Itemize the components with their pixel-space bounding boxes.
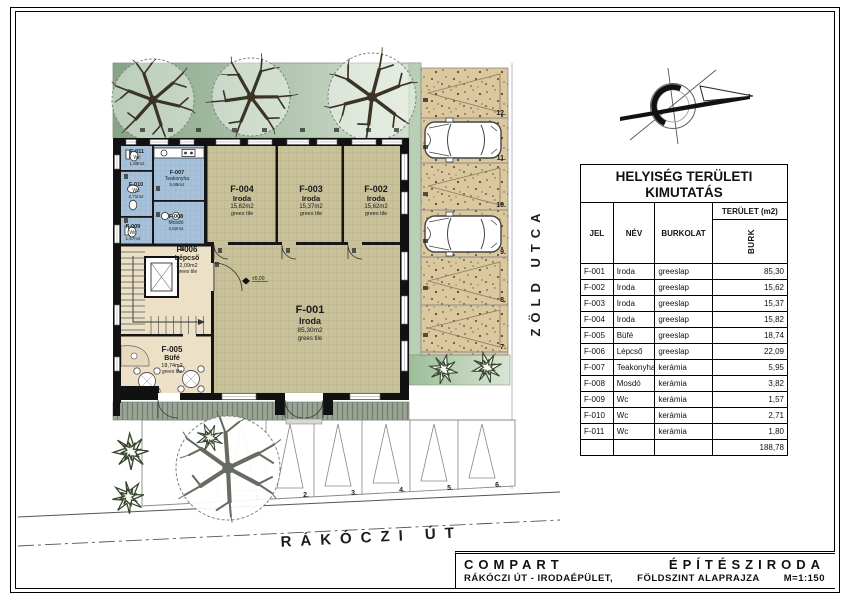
company-name-left: COMPART: [464, 557, 564, 572]
room-label-f008: F-008 Mosdó 3,82m2: [168, 214, 184, 231]
stall-number: 6.: [495, 482, 501, 489]
svg-text:grees tile: grees tile: [177, 269, 198, 275]
area-table-title-line2: KIMUTATÁS: [581, 185, 787, 201]
svg-text:Iroda: Iroda: [233, 194, 252, 203]
stall-number: 3.: [351, 490, 357, 497]
stall-number: 2.: [303, 492, 309, 499]
svg-text:Iroda: Iroda: [302, 194, 321, 203]
svg-text:F-003: F-003: [299, 184, 323, 194]
building: ±0,00: [113, 128, 409, 424]
stall-number: 4.: [399, 487, 405, 494]
stall-number: 11.: [497, 155, 506, 162]
svg-text:15,82m2: 15,82m2: [230, 204, 254, 210]
elevator: [145, 257, 178, 297]
title-block: COMPART ÉPÍTÉSZIRODA RÁKÓCZI ÚT - IRODAÉ…: [455, 551, 835, 588]
svg-text:Iroda: Iroda: [299, 316, 322, 326]
col-header-nev: NÉV: [614, 203, 656, 263]
table-row: F-002Irodagreeslap15,62: [581, 280, 787, 296]
col-header-jel: JEL: [581, 203, 614, 263]
svg-text:±0,00: ±0,00: [252, 276, 265, 282]
svg-text:F-001: F-001: [296, 304, 325, 316]
svg-text:85,30m2: 85,30m2: [297, 327, 323, 334]
svg-text:15,62m2: 15,62m2: [364, 204, 388, 210]
area-table-title-line1: HELYISÉG TERÜLETI: [581, 169, 787, 185]
svg-text:grees tile: grees tile: [298, 336, 323, 342]
table-row: F-005Büfégreeslap18,74: [581, 328, 787, 344]
table-row: F-007Teakonyhakerámia5,95: [581, 360, 787, 376]
svg-text:2,71m2: 2,71m2: [128, 194, 144, 199]
svg-text:grees tile: grees tile: [300, 211, 322, 217]
svg-text:1,80m2: 1,80m2: [129, 161, 145, 166]
svg-text:Iroda: Iroda: [367, 194, 386, 203]
room-label-f002: F-002 Iroda 15,62m2 grees tile: [364, 184, 388, 217]
room-label-f001: F-001 Iroda 85,30m2 grees tile: [296, 304, 325, 342]
car-icon: [425, 118, 501, 162]
stall-number: 12.: [496, 110, 506, 117]
svg-text:Büfé: Büfé: [164, 355, 180, 362]
drawing-name: FÖLDSZINT ALAPRAJZA: [637, 573, 760, 584]
street-label-zold-utca: ZÖLD UTCA: [528, 207, 543, 336]
project-name: RÁKÓCZI ÚT - IRODAÉPÜLET,: [464, 573, 613, 584]
col-header-terulet: TERÜLET (m2) BURK: [713, 203, 787, 263]
table-total-row: 188,78: [581, 440, 787, 455]
room-label-f006: F-006 Lépcső 22,09m2 grees tile: [175, 245, 200, 275]
table-row: F-006Lépcsőgreeslap22,09: [581, 344, 787, 360]
company-name-right: ÉPÍTÉSZIRODA: [669, 557, 825, 572]
area-table-title: HELYISÉG TERÜLETI KIMUTATÁS: [581, 165, 787, 203]
col-header-terulet-m2: TERÜLET (m2): [713, 203, 787, 220]
svg-text:Lépcső: Lépcső: [175, 255, 200, 262]
svg-text:grees tile: grees tile: [365, 211, 387, 217]
table-row: F-009Wckerámia1,57: [581, 392, 787, 408]
room-label-f003: F-003 Iroda 15,37m2 grees tile: [299, 184, 323, 217]
stall-number: 9.: [500, 249, 506, 256]
col-header-burkolat: BURKOLAT: [655, 203, 712, 263]
col-header-burk-rotated: BURK: [747, 229, 756, 254]
svg-text:3,82m2: 3,82m2: [168, 226, 184, 231]
table-row: F-003Irodagreeslap15,37: [581, 296, 787, 312]
table-row: F-001Irodagreeslap85,30: [581, 264, 787, 280]
svg-text:F-004: F-004: [230, 184, 254, 194]
table-row: F-008Mosdókerámia3,82: [581, 376, 787, 392]
table-total-value: 188,78: [713, 440, 787, 455]
parking-lot-right: 12. 11. 10. 9. 8. 7.: [421, 68, 508, 355]
stall-number: 10.: [496, 202, 506, 209]
svg-text:grees tile: grees tile: [231, 211, 253, 217]
svg-text:F-002: F-002: [364, 184, 388, 194]
svg-text:1,57m2: 1,57m2: [125, 236, 141, 241]
table-row: F-011Wckerámia1,80: [581, 424, 787, 440]
svg-text:F-005: F-005: [162, 345, 183, 354]
room-label-f005: F-005 Büfé 18,74m2 grees tile: [161, 345, 183, 375]
sidewalk-strip: [113, 402, 409, 420]
area-table: HELYISÉG TERÜLETI KIMUTATÁS JEL NÉV BURK…: [580, 164, 788, 456]
street-label-rakoczi-ut: RÁKÓCZI ÚT: [280, 523, 463, 551]
svg-text:F-006: F-006: [177, 245, 198, 254]
room-label-f004: F-004 Iroda 15,82m2 grees tile: [230, 184, 254, 217]
stall-number: 8.: [500, 297, 506, 304]
area-table-header: JEL NÉV BURKOLAT TERÜLET (m2) BURK: [581, 203, 787, 264]
stall-number: 7.: [500, 344, 506, 351]
svg-text:15,37m2: 15,37m2: [299, 204, 323, 210]
drawing-scale: M=1:150: [784, 573, 825, 584]
north-arrow-icon: [620, 68, 753, 144]
car-icon: [425, 212, 501, 256]
table-row: F-004Irodagreeslap15,82: [581, 312, 787, 328]
table-row: F-010Wckerámia2,71: [581, 408, 787, 424]
svg-text:5,95m2: 5,95m2: [169, 182, 185, 187]
stall-number: 5.: [447, 485, 453, 492]
svg-text:grees tile: grees tile: [162, 369, 183, 375]
